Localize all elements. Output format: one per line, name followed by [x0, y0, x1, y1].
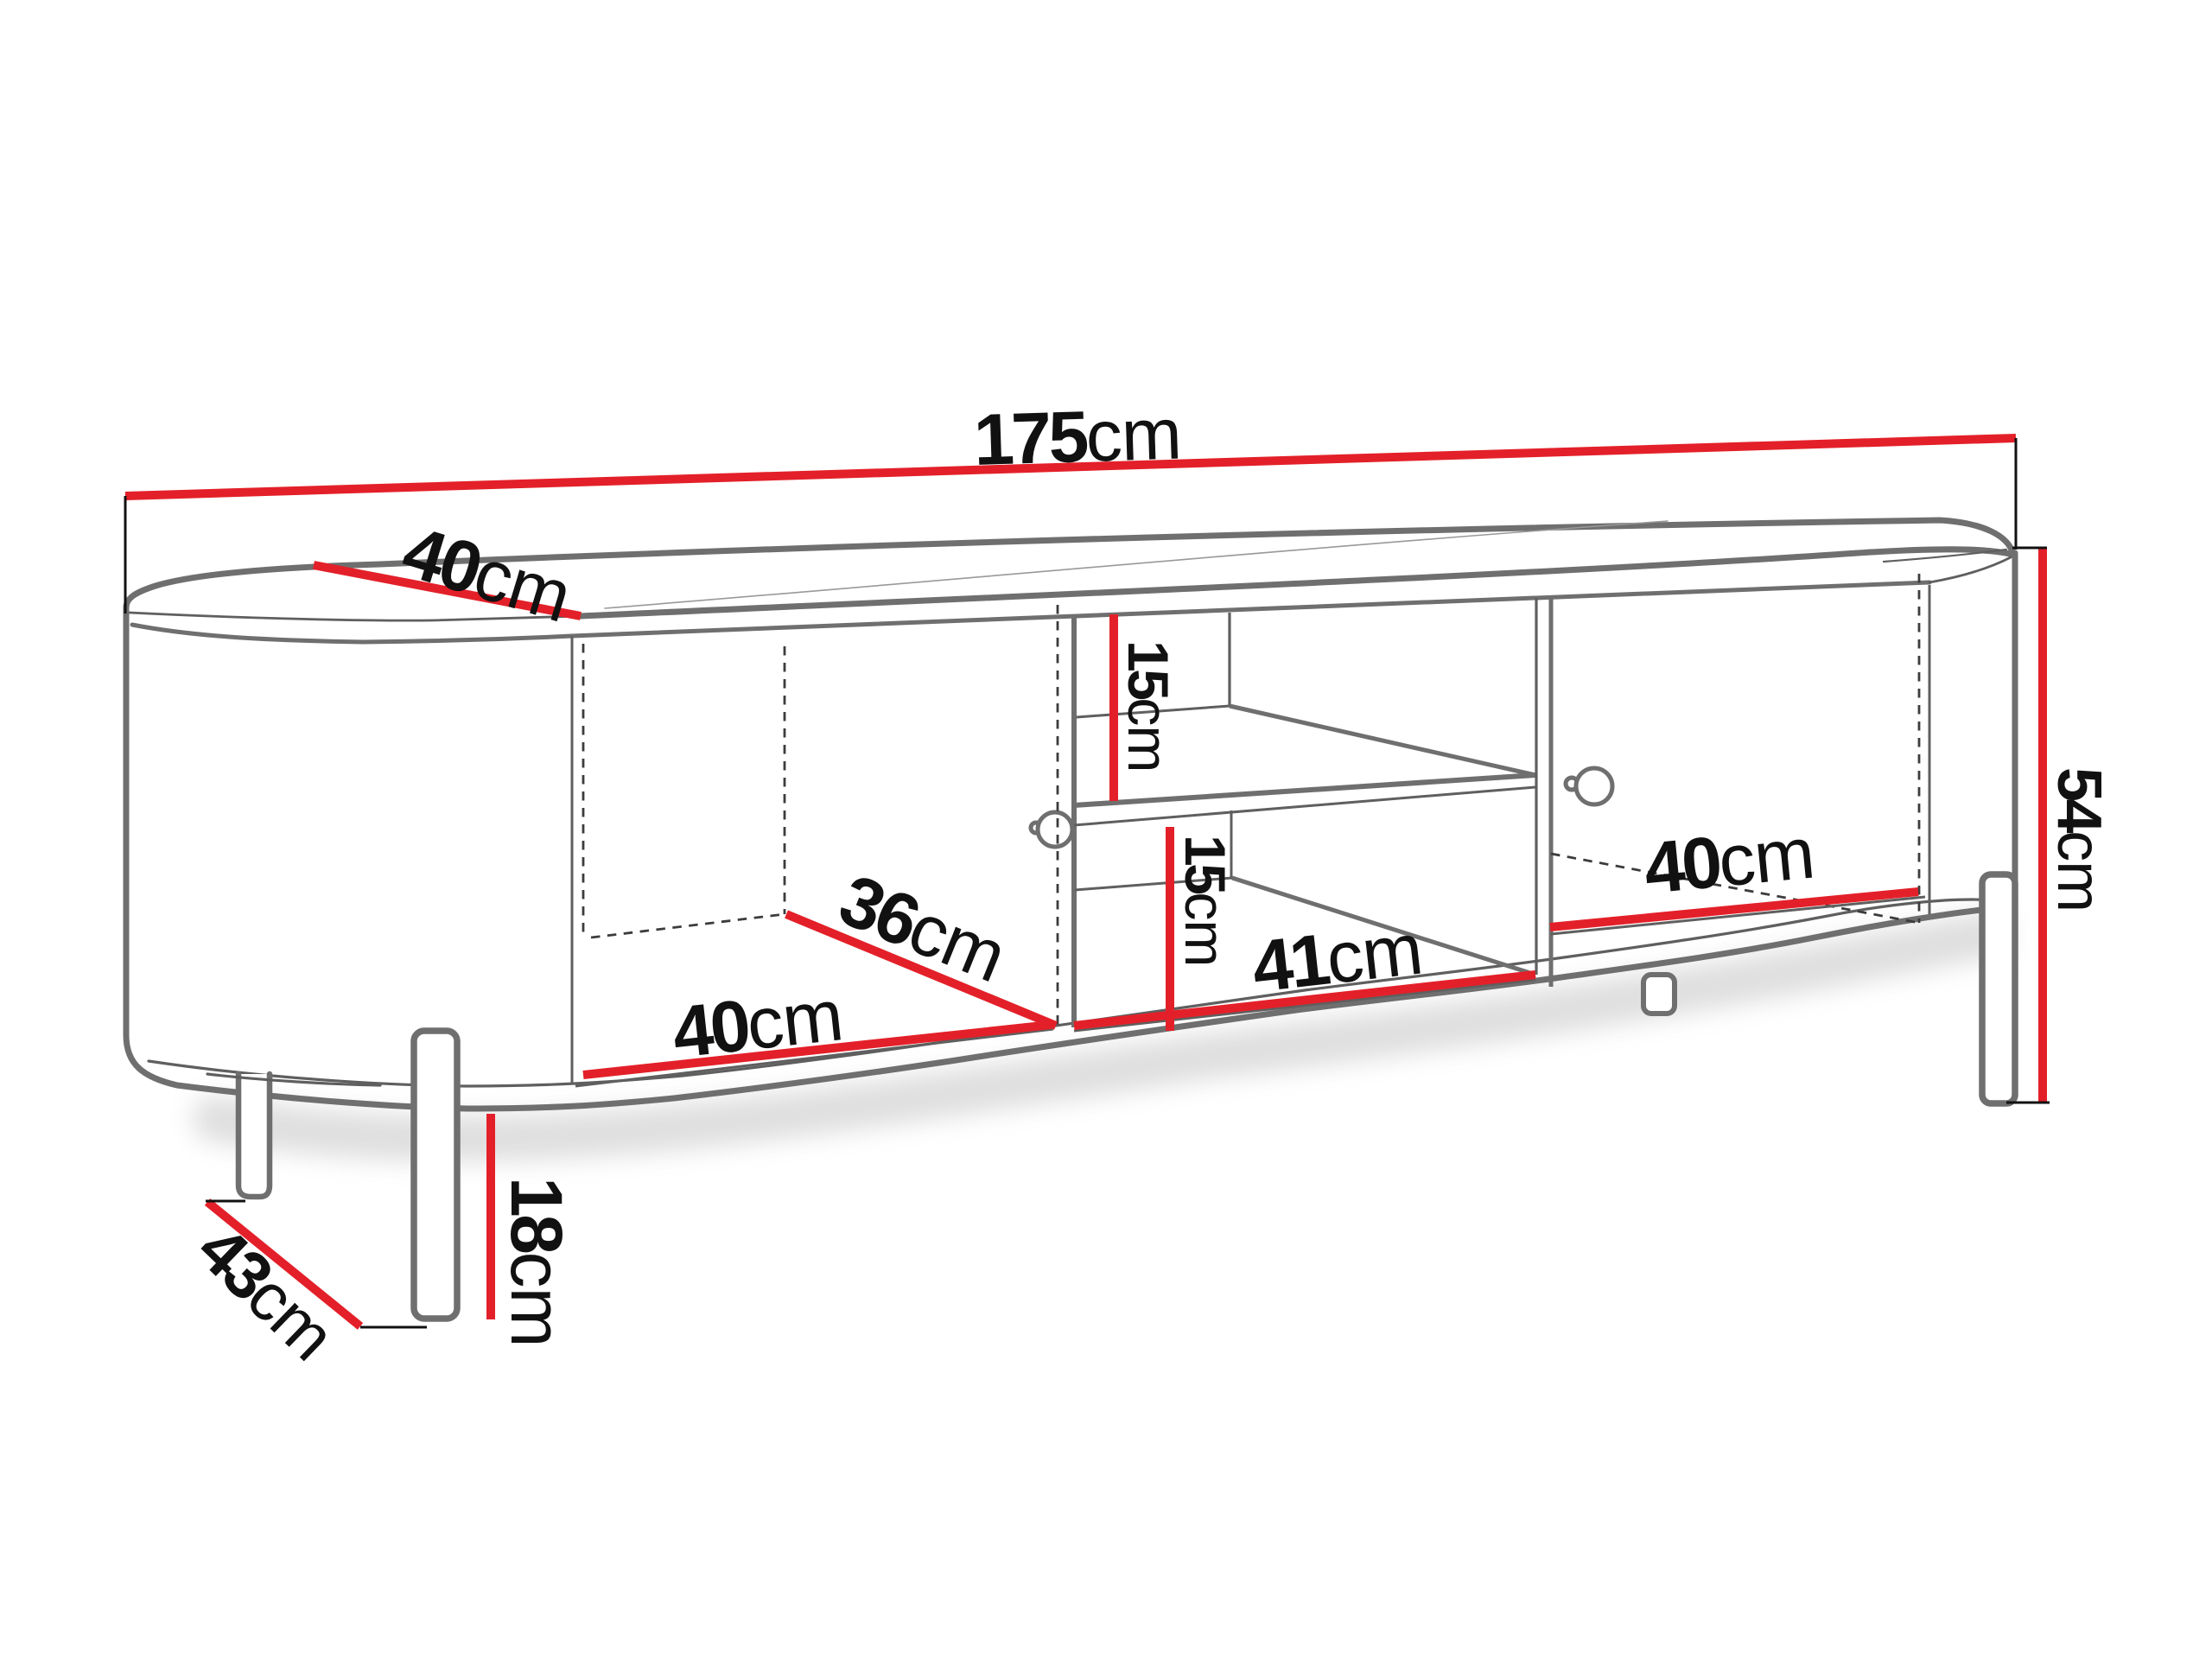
svg-text:15cm: 15cm — [1173, 835, 1237, 966]
svg-text:18cm: 18cm — [496, 1177, 577, 1346]
svg-text:175cm: 175cm — [973, 393, 1182, 480]
svg-text:40cm: 40cm — [1641, 812, 1818, 909]
svg-text:15cm: 15cm — [1116, 640, 1180, 772]
svg-text:54cm: 54cm — [2044, 767, 2113, 912]
